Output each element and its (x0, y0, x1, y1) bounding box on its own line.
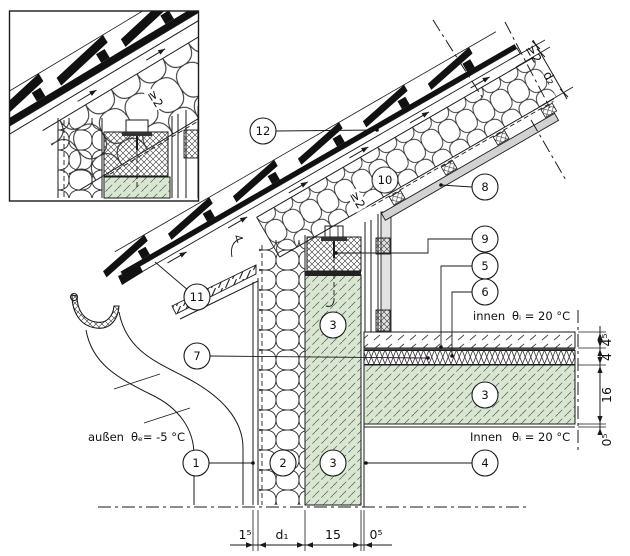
dim-impact-insulation-thickness: 4 (599, 353, 614, 361)
construction-detail-page: ≥2 ≥2 d₂ 1⁵ d₁ 15 0⁵ 4 (0, 0, 630, 556)
dim-slab-thickness: 16 (599, 387, 614, 403)
svg-text:8: 8 (481, 180, 488, 194)
callout-4: 4 (472, 450, 498, 476)
dim-screed-thickness: 4⁵ (599, 334, 614, 347)
inset-wall-insulation (58, 118, 102, 198)
floor-assembly (364, 332, 575, 427)
svg-text:3: 3 (329, 456, 336, 470)
inside-upper-temperature: θᵢ = 20 °C (512, 309, 570, 323)
lining-batten-lower (376, 310, 390, 331)
construction-detail-drawing: ≥2 ≥2 d₂ 1⁵ d₁ 15 0⁵ 4 (0, 0, 630, 556)
screed-layer (364, 332, 575, 348)
callout-9: 9 (472, 226, 498, 252)
dim-plaster-thickness: 0⁵ (370, 527, 383, 542)
callout-7: 7 (184, 343, 210, 369)
bottom-dimension-chain: 1⁵ d₁ 15 0⁵ (230, 510, 392, 551)
interior-lining-boards (365, 212, 391, 332)
inside-upper-zone-label: innen (473, 309, 505, 323)
callout-3-slab: 3 (472, 382, 498, 408)
inside-lower-temperature: θᵢ = 20 °C (512, 430, 570, 444)
callout-3-wall-lower: 3 (320, 450, 346, 476)
outside-zone-label: außen (88, 430, 124, 444)
right-dimension-chain: 4⁵ 4 16 0⁵ (578, 326, 614, 446)
outside-temperature: θₑ= -5 °C (131, 430, 185, 444)
dim-masonry-thickness: 15 (325, 527, 341, 542)
callout-12: 12 (250, 118, 276, 144)
gutter-profile (72, 295, 119, 328)
svg-text:4: 4 (481, 456, 488, 470)
svg-text:12: 12 (256, 124, 271, 138)
svg-text:3: 3 (481, 388, 488, 402)
svg-text:5: 5 (481, 259, 488, 273)
svg-text:7: 7 (193, 349, 200, 363)
svg-text:2: 2 (279, 456, 286, 470)
floor-slab-hatch (364, 365, 575, 424)
dim-wall-insulation-thickness: d₁ (276, 527, 289, 542)
callout-10: 10 (372, 167, 398, 193)
mortar-bed-band (305, 271, 361, 276)
callout-1: 1 (183, 450, 209, 476)
dim-ceiling-plaster-thickness: 0⁵ (599, 434, 614, 447)
svg-text:6: 6 (481, 285, 488, 299)
dim-render-thickness: 1⁵ (239, 527, 252, 542)
svg-text:9: 9 (481, 232, 488, 246)
svg-text:3: 3 (329, 318, 336, 332)
downpipe (86, 312, 243, 505)
inside-lower-zone-label: Innen (470, 430, 502, 444)
callout-3-wall-upper: 3 (320, 312, 346, 338)
callout-11: 11 (184, 284, 210, 310)
svg-text:11: 11 (190, 290, 205, 304)
callout-5: 5 (472, 253, 498, 279)
callout-2: 2 (270, 450, 296, 476)
svg-text:10: 10 (378, 173, 393, 187)
lining-batten-upper (376, 238, 390, 254)
cut-line-roof-lower (531, 120, 567, 182)
gutter (71, 294, 120, 329)
svg-text:1: 1 (192, 456, 199, 470)
callout-6: 6 (472, 279, 498, 305)
air-inlet-arrow (231, 236, 243, 257)
callout-8: 8 (472, 174, 498, 200)
